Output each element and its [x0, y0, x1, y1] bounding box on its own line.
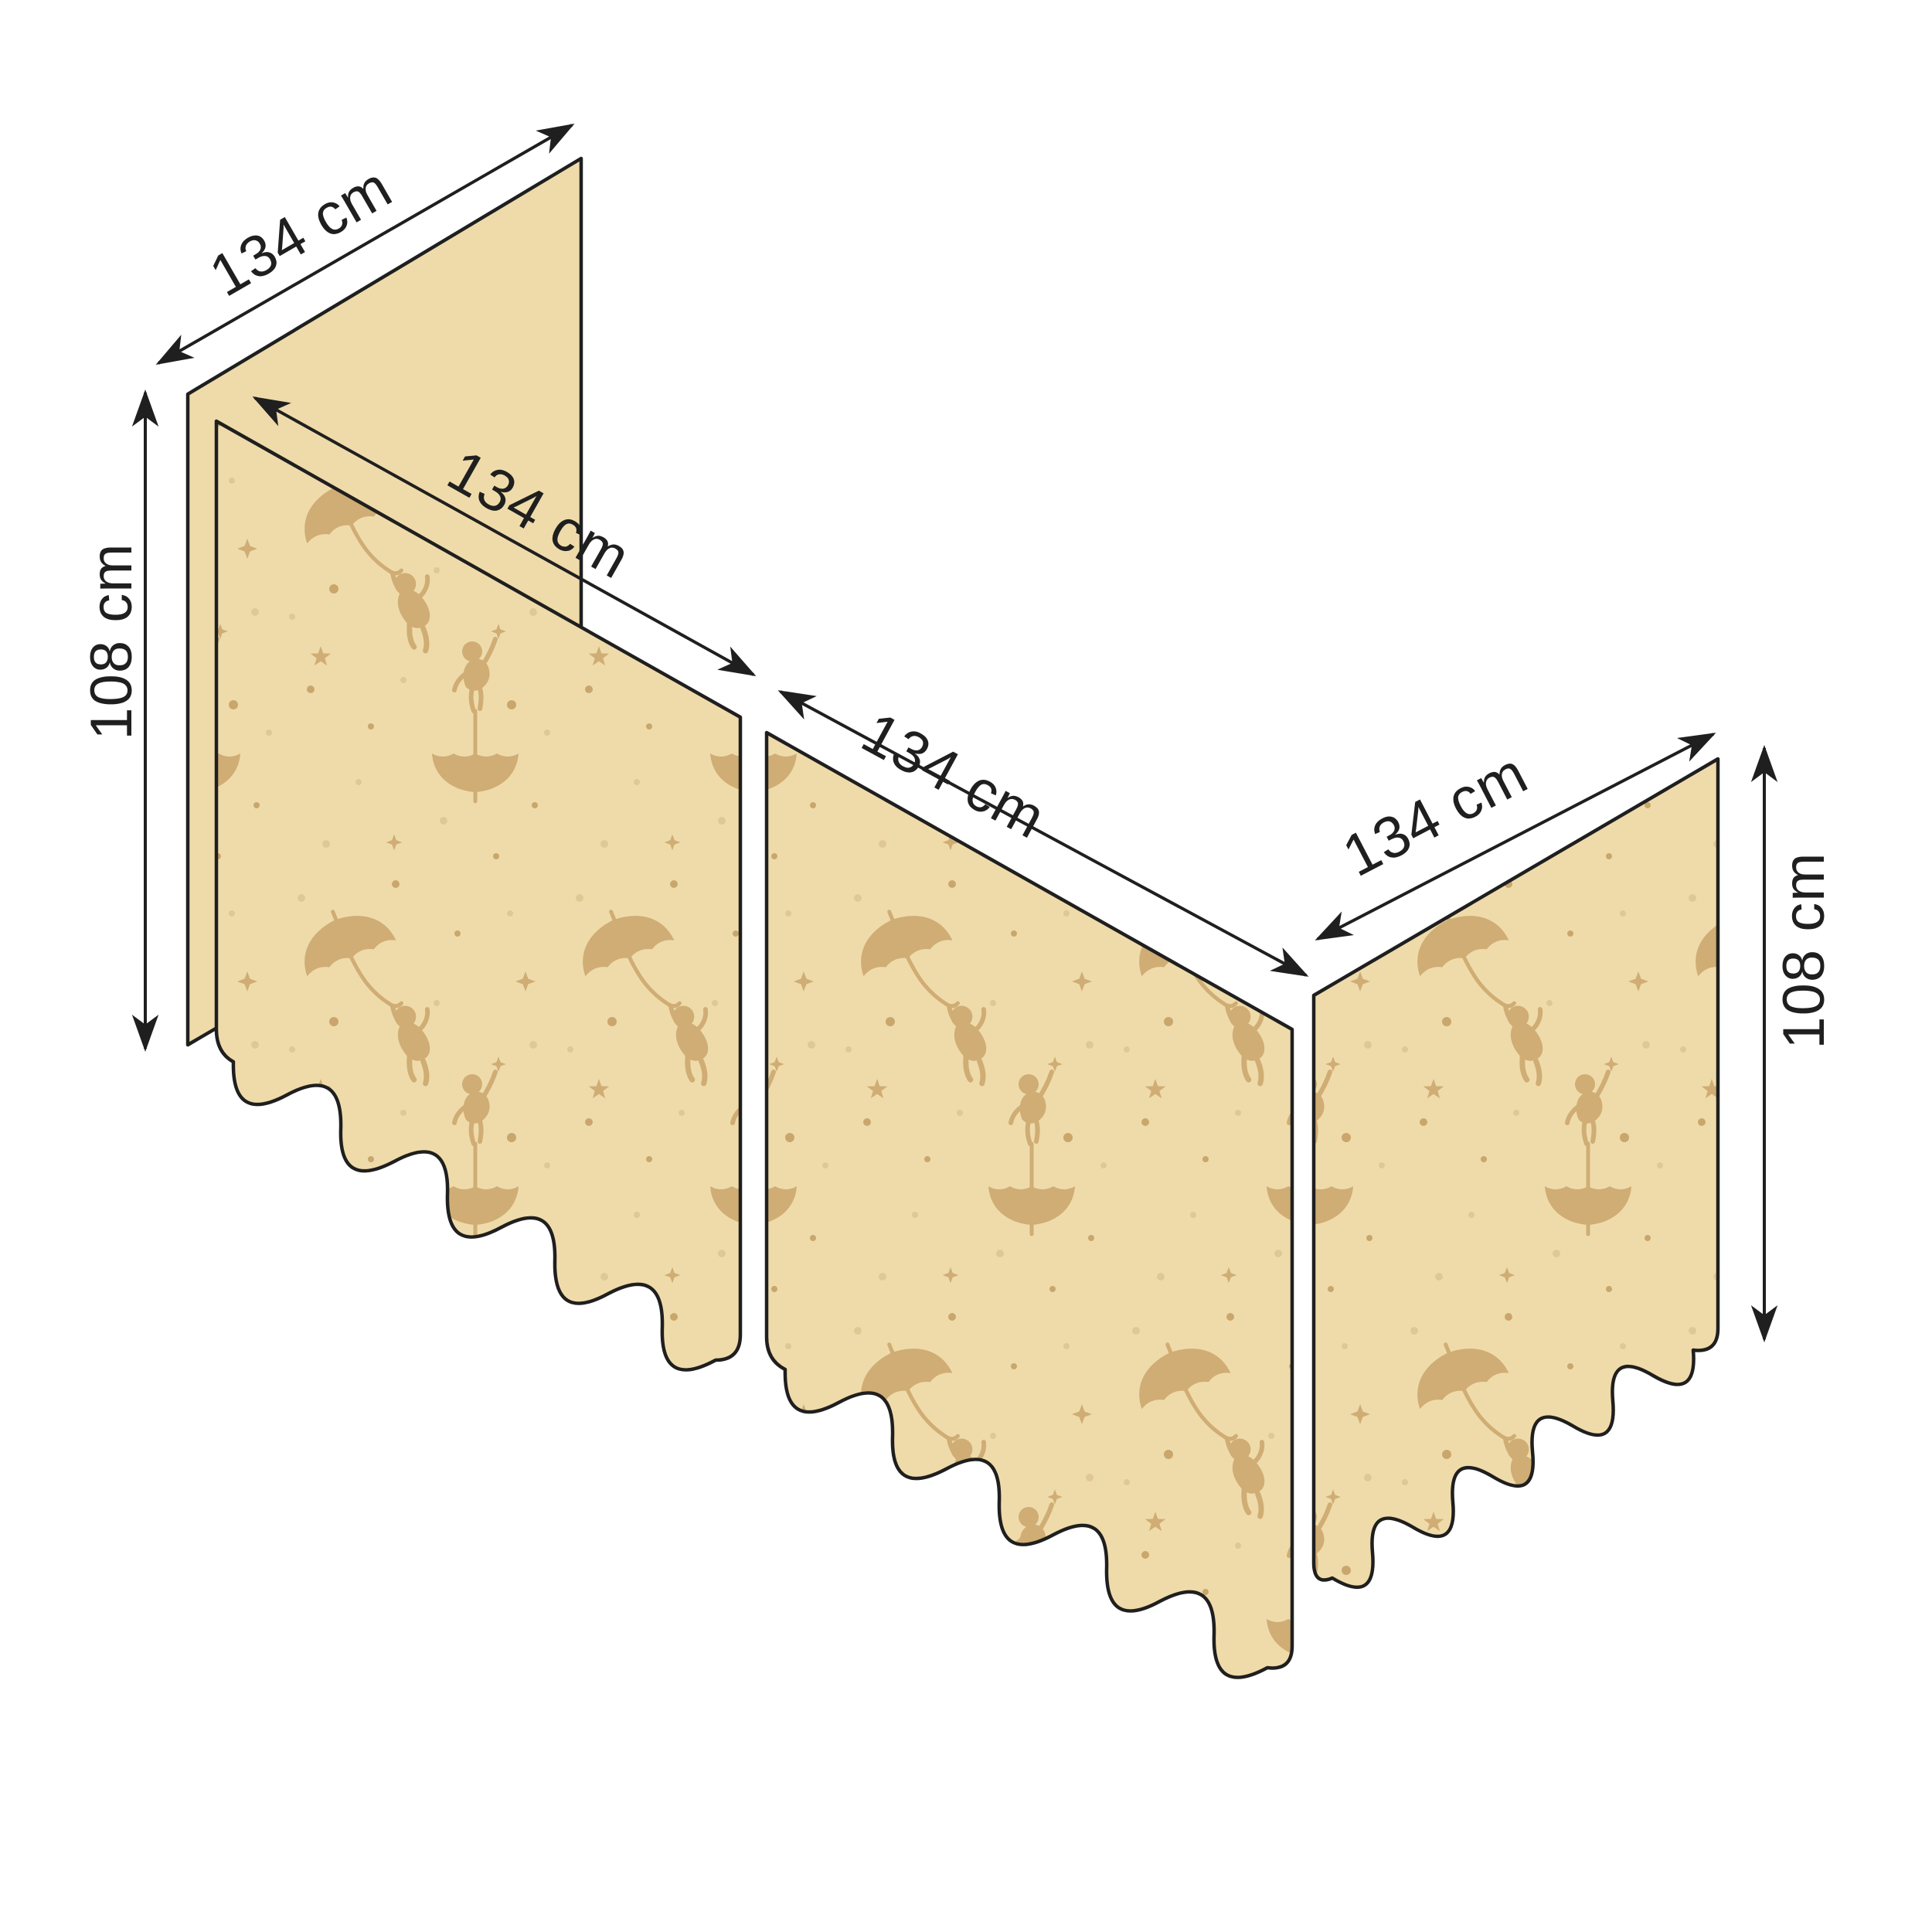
dim-label-left-height: 108 cm	[79, 543, 145, 740]
curtain-dimensions-diagram: 134 cm 108 cm 134 cm 134 cm 134 cm 108 c…	[0, 0, 1932, 1932]
dim-label-right-height: 108 cm	[1771, 852, 1837, 1049]
